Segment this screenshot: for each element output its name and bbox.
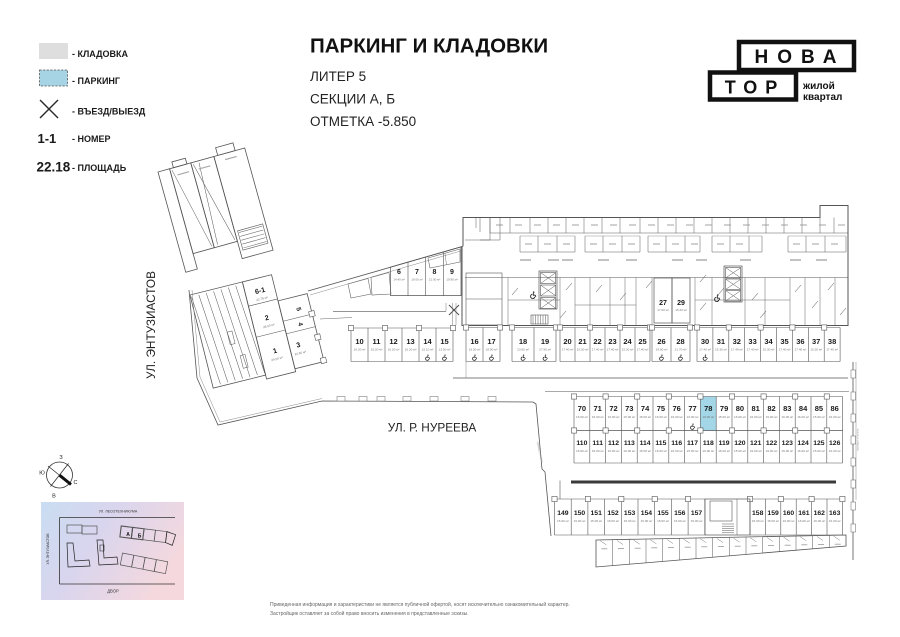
svg-text:15.00 м²: 15.00 м² — [766, 415, 778, 419]
svg-text:15.00 м²: 15.00 м² — [813, 415, 825, 419]
svg-text:17.40 м²: 17.40 м² — [562, 348, 574, 352]
svg-text:23: 23 — [608, 337, 616, 346]
svg-text:4: 4 — [296, 322, 304, 328]
svg-text:25: 25 — [638, 337, 646, 346]
svg-text:17.00 м²: 17.00 м² — [657, 308, 668, 312]
svg-text:16.00 м²: 16.00 м² — [797, 449, 809, 453]
svg-text:36: 36 — [796, 337, 804, 346]
svg-text:17.40 м²: 17.40 м² — [731, 348, 743, 352]
svg-text:16.00 м²: 16.00 м² — [781, 415, 793, 419]
svg-text:125: 125 — [813, 440, 825, 447]
svg-text:15.00 м²: 15.00 м² — [623, 415, 635, 419]
svg-text:А: А — [126, 532, 130, 538]
svg-text:163: 163 — [829, 510, 841, 517]
svg-text:ОТМЕТКА -5.850: ОТМЕТКА -5.850 — [310, 114, 416, 129]
svg-text:160: 160 — [783, 510, 795, 517]
svg-text:115: 115 — [655, 440, 666, 447]
svg-text:16.00 м²: 16.00 м² — [592, 415, 604, 419]
svg-text:28: 28 — [676, 337, 684, 346]
svg-text:159: 159 — [767, 510, 779, 517]
svg-text:123: 123 — [782, 440, 794, 447]
svg-text:120: 120 — [734, 440, 746, 447]
svg-text:жилой: жилой — [802, 81, 835, 92]
svg-text:Приведенная информация и харак: Приведенная информация и характеристики … — [270, 601, 570, 608]
svg-text:16.00 м²: 16.00 м² — [608, 415, 620, 419]
svg-text:24.80 м²: 24.80 м² — [294, 350, 306, 357]
svg-text:21.70 м²: 21.70 м² — [675, 348, 687, 352]
svg-text:16.00 м²: 16.00 м² — [623, 449, 635, 453]
svg-text:НОВА: НОВА — [755, 47, 846, 68]
svg-text:151: 151 — [591, 510, 603, 517]
svg-text:15.00 м²: 15.00 м² — [657, 519, 669, 523]
svg-text:УЛ. Р. НУРЕЕВА: УЛ. Р. НУРЕЕВА — [388, 421, 477, 435]
svg-text:70: 70 — [578, 404, 586, 413]
svg-text:Застройщик оставляет за собой: Застройщик оставляет за собой право внос… — [270, 610, 469, 617]
svg-text:15.00 м²: 15.00 м² — [813, 449, 825, 453]
svg-text:12: 12 — [389, 337, 397, 346]
svg-text:15.00 м²: 15.00 м² — [592, 449, 604, 453]
svg-text:16.00 м²: 16.00 м² — [687, 415, 699, 419]
svg-text:15.00 м²: 15.00 м² — [607, 519, 619, 523]
svg-text:16.00 м²: 16.00 м² — [798, 519, 810, 523]
svg-text:15.00 м²: 15.00 м² — [752, 519, 764, 523]
svg-text:16.00 м²: 16.00 м² — [783, 519, 795, 523]
svg-text:21: 21 — [578, 337, 586, 346]
svg-text:1: 1 — [272, 348, 278, 356]
svg-text:15.00 м²: 15.00 м² — [734, 449, 746, 453]
svg-text:16.00 м²: 16.00 м² — [797, 415, 809, 419]
svg-text:13: 13 — [406, 337, 414, 346]
svg-text:17.40 м²: 17.40 м² — [826, 348, 838, 352]
svg-text:- НОМЕР: - НОМЕР — [72, 134, 111, 144]
svg-text:20: 20 — [563, 337, 571, 346]
svg-text:29: 29 — [677, 300, 685, 307]
svg-text:22: 22 — [593, 337, 601, 346]
svg-text:З: З — [59, 455, 63, 461]
svg-text:158: 158 — [752, 510, 764, 517]
svg-text:26: 26 — [657, 337, 665, 346]
svg-text:19.00 м²: 19.00 м² — [469, 348, 481, 352]
svg-text:- ВЪЕЗД/ВЫЕЗД: - ВЪЕЗД/ВЫЕЗД — [72, 107, 146, 117]
svg-text:15.00 м²: 15.00 м² — [624, 519, 636, 523]
svg-text:Б: Б — [138, 534, 142, 540]
svg-text:82: 82 — [767, 404, 775, 413]
svg-text:ТОР: ТОР — [725, 78, 786, 98]
svg-text:16.00 м²: 16.00 м² — [655, 415, 667, 419]
svg-text:16.00 м²: 16.00 м² — [766, 449, 778, 453]
svg-text:16.20 м²: 16.20 м² — [371, 348, 383, 352]
svg-text:граница участка: граница участка — [856, 428, 860, 451]
svg-text:81: 81 — [752, 404, 760, 413]
svg-text:113: 113 — [624, 440, 635, 447]
svg-text:В: В — [52, 494, 56, 500]
svg-text:15.00 м²: 15.00 м² — [781, 449, 793, 453]
svg-text:17.40 м²: 17.40 м² — [779, 348, 791, 352]
svg-text:16.20 м²: 16.20 м² — [388, 348, 400, 352]
svg-text:72: 72 — [609, 404, 617, 413]
svg-text:- КЛАДОВКА: - КЛАДОВКА — [72, 49, 129, 59]
svg-text:38: 38 — [828, 337, 836, 346]
svg-text:35: 35 — [780, 337, 788, 346]
svg-text:15.00 м²: 15.00 м² — [718, 415, 730, 419]
svg-text:15.20 м²: 15.20 м² — [675, 308, 686, 312]
svg-text:126: 126 — [829, 440, 841, 447]
svg-text:16.00 м²: 16.00 м² — [655, 449, 667, 453]
svg-text:16.00 м²: 16.00 м² — [750, 449, 762, 453]
svg-text:16.00 м²: 16.00 м² — [608, 449, 620, 453]
svg-text:17.40 м²: 17.40 м² — [592, 348, 604, 352]
svg-text:17.40 м²: 17.40 м² — [637, 348, 649, 352]
svg-text:15.00 м²: 15.00 м² — [674, 519, 686, 523]
svg-text:16.00 м²: 16.00 м² — [829, 415, 841, 419]
svg-text:15.30 м²: 15.30 м² — [763, 348, 775, 352]
svg-text:3: 3 — [296, 342, 302, 350]
svg-text:17.40 м²: 17.40 м² — [607, 348, 619, 352]
svg-text:15.30 м²: 15.30 м² — [715, 348, 727, 352]
svg-text:150: 150 — [574, 510, 586, 517]
svg-text:83: 83 — [783, 404, 791, 413]
svg-text:15.00 м²: 15.00 м² — [557, 519, 569, 523]
svg-text:- ПАРКИНГ: - ПАРКИНГ — [72, 76, 120, 86]
svg-text:С: С — [74, 480, 78, 486]
svg-text:15.00 м²: 15.00 м² — [813, 519, 825, 523]
svg-text:77: 77 — [688, 404, 696, 413]
svg-text:14: 14 — [423, 337, 432, 346]
svg-text:16: 16 — [470, 337, 478, 346]
svg-text:153: 153 — [624, 510, 636, 517]
svg-text:15.00 м²: 15.00 м² — [767, 519, 779, 523]
svg-text:16.00 м²: 16.00 м² — [829, 519, 841, 523]
svg-text:15.00 м²: 15.00 м² — [639, 415, 651, 419]
svg-text:30: 30 — [701, 337, 709, 346]
svg-text:22.76 м²: 22.76 м² — [256, 295, 268, 302]
svg-text:21.00 м²: 21.00 м² — [429, 278, 440, 282]
svg-text:124: 124 — [797, 440, 809, 447]
svg-text:16.00 м²: 16.00 м² — [750, 415, 762, 419]
svg-text:32: 32 — [733, 337, 741, 346]
svg-text:15.00 м²: 15.00 м² — [590, 519, 602, 523]
svg-text:74: 74 — [641, 404, 650, 413]
svg-text:73: 73 — [625, 404, 633, 413]
svg-text:122: 122 — [766, 440, 778, 447]
svg-text:111: 111 — [592, 440, 603, 447]
svg-text:19.90 м²: 19.90 м² — [656, 348, 668, 352]
svg-text:УЛ. ЛЕСОТЕХНИКУМА: УЛ. ЛЕСОТЕХНИКУМА — [99, 510, 138, 514]
svg-text:85: 85 — [815, 404, 823, 413]
svg-text:14.40 м²: 14.40 м² — [393, 278, 404, 282]
svg-text:граница участка: граница участка — [536, 441, 545, 463]
svg-text:22.18: 22.18 — [37, 160, 71, 175]
svg-text:117: 117 — [687, 440, 698, 447]
svg-text:- ПЛОЩАДЬ: - ПЛОЩАДЬ — [72, 163, 127, 173]
svg-text:18.90 м²: 18.90 м² — [486, 348, 498, 352]
svg-text:СЕКЦИИ А, Б: СЕКЦИИ А, Б — [310, 92, 395, 107]
svg-text:15.00 м²: 15.00 м² — [574, 519, 586, 523]
svg-text:121: 121 — [750, 440, 762, 447]
svg-text:19: 19 — [541, 337, 549, 346]
svg-text:УЛ. ЭНТУЗИАСТОВ: УЛ. ЭНТУЗИАСТОВ — [144, 271, 158, 379]
svg-text:11: 11 — [373, 337, 381, 346]
svg-text:6-1: 6-1 — [254, 287, 266, 296]
svg-text:162: 162 — [814, 510, 826, 517]
svg-text:154: 154 — [641, 510, 653, 517]
svg-text:ПАРКИНГ И КЛАДОВКИ: ПАРКИНГ И КЛАДОВКИ — [310, 35, 548, 58]
svg-text:18: 18 — [519, 337, 527, 346]
svg-text:76: 76 — [673, 404, 681, 413]
svg-text:15.30 м²: 15.30 м² — [577, 348, 589, 352]
svg-text:16.00 м²: 16.00 м² — [829, 449, 841, 453]
svg-text:квартал: квартал — [803, 92, 842, 103]
svg-text:15.30 м²: 15.30 м² — [810, 348, 822, 352]
svg-text:9: 9 — [450, 269, 454, 276]
svg-text:27: 27 — [659, 300, 667, 307]
svg-text:79: 79 — [720, 404, 728, 413]
svg-text:16.00 м²: 16.00 м² — [702, 449, 714, 453]
svg-text:114: 114 — [640, 440, 651, 447]
svg-text:156: 156 — [674, 510, 686, 517]
svg-text:УЛ. ЭНТУЗИАСТОВ: УЛ. ЭНТУЗИАСТОВ — [46, 533, 50, 565]
svg-text:27.90 м²: 27.90 м² — [539, 348, 551, 352]
svg-text:152: 152 — [607, 510, 619, 517]
svg-text:31: 31 — [717, 337, 725, 346]
svg-text:17.40 м²: 17.40 м² — [795, 348, 807, 352]
svg-text:16.00 м²: 16.00 м² — [734, 415, 746, 419]
svg-text:15.00 м²: 15.00 м² — [641, 519, 653, 523]
svg-text:112: 112 — [608, 440, 619, 447]
svg-text:161: 161 — [798, 510, 810, 517]
svg-text:26.50 м²: 26.50 м² — [263, 322, 275, 329]
svg-text:16.00 м²: 16.00 м² — [671, 449, 683, 453]
svg-text:15: 15 — [440, 337, 448, 346]
svg-text:37: 37 — [812, 337, 820, 346]
svg-text:13.50 м²: 13.50 м² — [439, 348, 451, 352]
svg-text:16.00 м²: 16.00 м² — [576, 449, 588, 453]
svg-text:16.00 м²: 16.00 м² — [718, 449, 730, 453]
svg-text:Ю: Ю — [39, 471, 45, 477]
svg-text:118: 118 — [703, 440, 714, 447]
svg-text:15.00 м²: 15.00 м² — [671, 415, 683, 419]
svg-text:16.20 м²: 16.20 м² — [405, 348, 417, 352]
svg-text:1-1: 1-1 — [38, 131, 57, 146]
svg-text:80: 80 — [736, 404, 744, 413]
svg-text:29.50 м²: 29.50 м² — [271, 355, 283, 362]
svg-text:15.30 м²: 15.30 м² — [622, 348, 634, 352]
svg-text:6: 6 — [397, 269, 401, 276]
svg-text:15.00 м²: 15.00 м² — [687, 449, 699, 453]
svg-text:110: 110 — [576, 440, 587, 447]
svg-text:75: 75 — [657, 404, 665, 413]
svg-text:8: 8 — [433, 269, 437, 276]
svg-text:149: 149 — [557, 510, 569, 517]
svg-text:7: 7 — [415, 269, 419, 276]
svg-text:78: 78 — [704, 404, 712, 413]
svg-text:116: 116 — [671, 440, 682, 447]
svg-text:34: 34 — [764, 337, 773, 346]
svg-text:84: 84 — [799, 404, 808, 413]
svg-text:119: 119 — [719, 440, 730, 447]
svg-text:16.20 м²: 16.20 м² — [354, 348, 366, 352]
svg-text:19.80 м²: 19.80 м² — [446, 278, 457, 282]
svg-text:157: 157 — [691, 510, 703, 517]
svg-text:17.40 м²: 17.40 м² — [747, 348, 759, 352]
svg-text:15.00 м²: 15.00 м² — [691, 519, 703, 523]
svg-text:17: 17 — [487, 337, 495, 346]
svg-text:86: 86 — [831, 404, 839, 413]
svg-text:24: 24 — [623, 337, 632, 346]
svg-text:23.60 м²: 23.60 м² — [517, 348, 529, 352]
svg-text:71: 71 — [594, 404, 602, 413]
svg-text:15.00 м²: 15.00 м² — [639, 449, 651, 453]
svg-text:17.40 м²: 17.40 м² — [699, 348, 711, 352]
svg-text:15.10 м²: 15.10 м² — [422, 348, 434, 352]
svg-text:16.00 м²: 16.00 м² — [576, 415, 588, 419]
svg-text:2: 2 — [264, 315, 270, 323]
svg-text:33: 33 — [748, 337, 756, 346]
svg-text:ЛИТЕР 5: ЛИТЕР 5 — [310, 69, 366, 84]
svg-text:155: 155 — [657, 510, 669, 517]
svg-text:16.00 м²: 16.00 м² — [702, 415, 714, 419]
svg-text:19.00 м²: 19.00 м² — [411, 278, 422, 282]
svg-text:10: 10 — [355, 337, 363, 346]
svg-text:5: 5 — [294, 307, 302, 313]
svg-text:ДВОР: ДВОР — [107, 589, 119, 594]
